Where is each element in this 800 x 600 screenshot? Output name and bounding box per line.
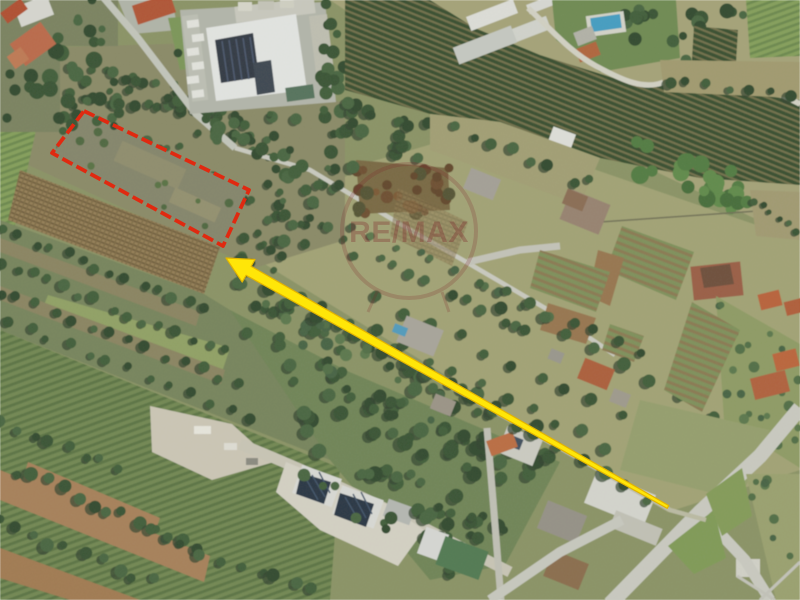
svg-text:RE/MAX: RE/MAX [349, 216, 469, 249]
